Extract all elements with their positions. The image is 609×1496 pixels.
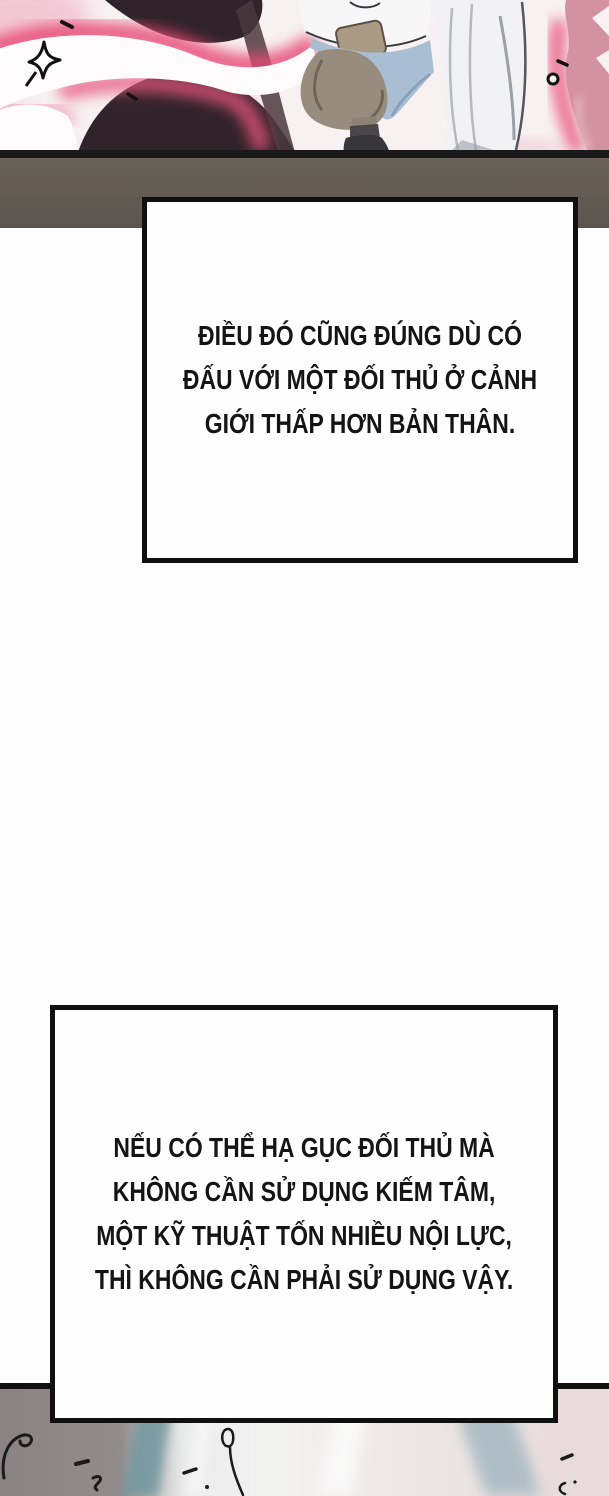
caption-line: GIỚI THẤP HƠN BẢN THÂN. <box>183 402 537 446</box>
caption-line: ĐIỀU ĐÓ CŨNG ĐÚNG DÙ CÓ <box>183 314 537 358</box>
dot-mark-icon <box>205 1485 209 1489</box>
ground-line <box>0 150 609 158</box>
caption-box: NẾU CÓ THỂ HẠ GỤC ĐỐI THỦ MÀ KHÔNG CẦN S… <box>50 1005 558 1423</box>
caption-line: MỘT KỸ THUẬT TỐN NHIỀU NỘI LỰC, <box>95 1214 513 1258</box>
caption-line: NẾU CÓ THỂ HẠ GỤC ĐỐI THỦ MÀ <box>95 1126 513 1170</box>
caption-text: NẾU CÓ THỂ HẠ GỤC ĐỐI THỦ MÀ KHÔNG CẦN S… <box>95 1126 513 1302</box>
small-circle-icon <box>548 74 558 84</box>
caption-line: THÌ KHÔNG CẦN PHẢI SỬ DỤNG VẬY. <box>95 1258 513 1302</box>
caption-text: ĐIỀU ĐÓ CŨNG ĐÚNG DÙ CÓ ĐẤU VỚI MỘT ĐỐI … <box>183 314 537 446</box>
comic-page: ĐIỀU ĐÓ CŨNG ĐÚNG DÙ CÓ ĐẤU VỚI MỘT ĐỐI … <box>0 0 609 1496</box>
top-panel-art <box>0 0 609 228</box>
dot-mark-icon <box>573 1480 576 1483</box>
caption-box: ĐIỀU ĐÓ CŨNG ĐÚNG DÙ CÓ ĐẤU VỚI MỘT ĐỐI … <box>142 197 578 563</box>
caption-line: KHÔNG CẦN SỬ DỤNG KIẾM TÂM, <box>95 1170 513 1214</box>
caption-line: ĐẤU VỚI MỘT ĐỐI THỦ Ở CẢNH <box>183 358 537 402</box>
